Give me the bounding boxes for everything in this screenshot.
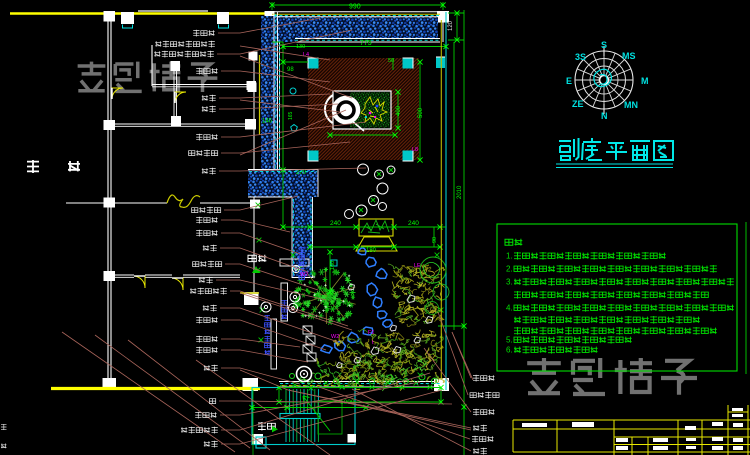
svg-text:F1: F1: [368, 330, 374, 336]
svg-text:N: N: [601, 111, 608, 121]
svg-text:S: S: [601, 40, 607, 50]
svg-text:2.: 2.: [506, 265, 513, 274]
svg-text:5.: 5.: [506, 336, 513, 345]
svg-text:775: 775: [360, 40, 372, 47]
svg-text:W2: W2: [300, 272, 308, 278]
svg-text:98: 98: [287, 67, 294, 73]
svg-text:160: 160: [330, 261, 336, 270]
svg-text:MS: MS: [622, 51, 636, 61]
svg-text:240: 240: [330, 220, 341, 227]
svg-text:4.: 4.: [506, 304, 513, 313]
svg-text:990: 990: [349, 4, 361, 11]
svg-text:146: 146: [262, 119, 273, 125]
svg-text:270: 270: [296, 170, 307, 176]
svg-text:50: 50: [388, 58, 394, 64]
svg-text:1.: 1.: [506, 252, 513, 261]
svg-text:E: E: [566, 76, 572, 86]
svg-text:W2: W2: [331, 334, 339, 340]
svg-text:3.: 3.: [506, 278, 513, 287]
svg-text:240: 240: [408, 220, 419, 227]
svg-text:180: 180: [366, 248, 377, 254]
svg-text:M: M: [641, 76, 649, 86]
svg-text:165: 165: [288, 111, 294, 120]
svg-text:LE: LE: [414, 263, 421, 269]
svg-text:L8: L8: [412, 147, 418, 153]
svg-text:2010: 2010: [457, 185, 463, 199]
svg-text:90: 90: [432, 237, 438, 243]
svg-text:130: 130: [296, 44, 305, 50]
svg-text:500: 500: [418, 107, 424, 118]
svg-text:L4: L4: [303, 52, 309, 58]
svg-text:3S: 3S: [575, 52, 586, 62]
svg-text:400: 400: [396, 105, 402, 116]
svg-text:6.: 6.: [506, 346, 513, 355]
svg-text:120: 120: [448, 20, 454, 31]
svg-text:ZE: ZE: [572, 99, 584, 109]
svg-text:MN: MN: [624, 100, 638, 110]
